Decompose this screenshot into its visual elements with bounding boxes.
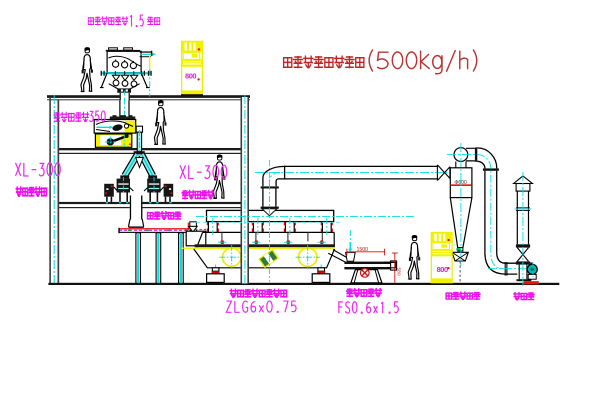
svg-text:800: 800 (185, 72, 197, 81)
svg-text:1500: 1500 (357, 247, 369, 253)
svg-text:580: 580 (396, 268, 402, 276)
svg-text:800: 800 (437, 265, 449, 274)
